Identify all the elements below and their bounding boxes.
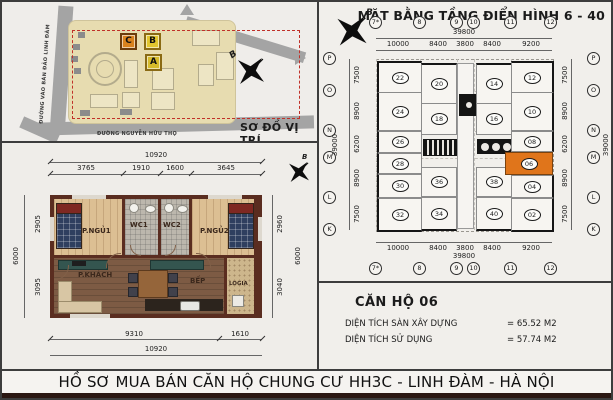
dim-total-bottom: 10920 bbox=[145, 345, 167, 353]
room-label-bedroom2: P.NGỦ2 bbox=[200, 227, 229, 235]
unit-number: 04 bbox=[524, 181, 541, 193]
dim-right: 2960 bbox=[276, 215, 284, 233]
dim-height: 6200 bbox=[353, 135, 361, 153]
road-bottom-label: ĐƯỜNG NGUYỄN HỮU THỌ bbox=[97, 131, 177, 137]
room-label-bedroom1: P.NGỦ1 bbox=[82, 227, 111, 235]
tv-icon bbox=[72, 261, 86, 266]
unit-cell: 10 bbox=[511, 92, 554, 131]
stairs bbox=[423, 139, 457, 156]
unit-number: 20 bbox=[431, 78, 448, 90]
axis-bubble-row: K bbox=[587, 223, 600, 236]
dim-line bbox=[50, 355, 262, 356]
unit-number: 26 bbox=[392, 136, 409, 148]
unit-info-row: DIỆN TÍCH SÀN XÂY DỰNG = 65.52 M2 bbox=[345, 319, 557, 329]
dim-width: 10000 bbox=[387, 40, 409, 48]
dim-width: 9200 bbox=[522, 244, 540, 252]
dim-width: 3800 bbox=[456, 244, 474, 252]
unit-number: 12 bbox=[524, 72, 541, 84]
dim-height: 8900 bbox=[561, 102, 569, 120]
document-sheet: C B A B ĐƯỜNG VÀO BÁN ĐẢO LINH ĐÀM ĐƯỜNG… bbox=[0, 0, 613, 400]
apartment-plan-panel: 10920 3765 1910 1600 3645 6000 2905 3095… bbox=[2, 143, 319, 369]
unit-cell: 24 bbox=[377, 92, 422, 131]
unit-info-label: DIỆN TÍCH SÀN XÂY DỰNG bbox=[345, 319, 507, 329]
unit-cell: 36 bbox=[421, 167, 457, 197]
bottom-edge-strip bbox=[2, 393, 611, 398]
dim-total-width: 39800 bbox=[453, 252, 475, 260]
dim-line bbox=[50, 162, 262, 163]
unit-number: 02 bbox=[524, 209, 541, 221]
road-left-label: ĐƯỜNG VÀO BÁN ĐẢO LINH ĐÀM bbox=[39, 24, 52, 124]
bed bbox=[228, 203, 254, 249]
unit-number: 28 bbox=[392, 158, 409, 170]
axis-bubble-row: O bbox=[323, 84, 336, 97]
axis-bubble-row: P bbox=[587, 52, 600, 65]
unit-number: 22 bbox=[392, 72, 409, 84]
unit-number: 38 bbox=[486, 176, 503, 188]
window bbox=[208, 195, 242, 199]
unit-cell-highlighted: 06 bbox=[505, 152, 553, 175]
unit-number: 36 bbox=[431, 176, 448, 188]
wall bbox=[224, 258, 227, 314]
axis-bubble-col: 10 bbox=[467, 262, 480, 275]
dim-top: 1910 bbox=[132, 164, 150, 172]
dim-line bbox=[349, 59, 350, 230]
unit-number: 16 bbox=[486, 113, 503, 125]
axis-bubble-row: K bbox=[323, 223, 336, 236]
room-label-wc1: WC1 bbox=[130, 221, 148, 229]
dim-line bbox=[571, 59, 572, 230]
unit-cell: 16 bbox=[476, 103, 512, 135]
dim-bottom: 9310 bbox=[125, 330, 143, 338]
chair bbox=[168, 273, 178, 283]
lift-icon bbox=[481, 143, 489, 151]
window bbox=[70, 314, 110, 318]
dim-height: 7500 bbox=[353, 205, 361, 223]
dim-line bbox=[376, 242, 552, 243]
dim-height: 8900 bbox=[353, 169, 361, 187]
unit-number: 14 bbox=[486, 78, 503, 90]
road-arrow-up-icon bbox=[180, 4, 194, 15]
sink-icon bbox=[177, 205, 188, 213]
building-label-a: A bbox=[150, 57, 157, 67]
dim-top: 3645 bbox=[217, 164, 235, 172]
unit-cell: 12 bbox=[511, 61, 554, 93]
tick bbox=[260, 336, 266, 342]
dim-top: 1600 bbox=[166, 164, 184, 172]
dim-line bbox=[24, 195, 25, 318]
wall bbox=[122, 199, 125, 255]
corridor bbox=[457, 63, 474, 229]
building-block-b: B bbox=[144, 33, 161, 50]
compass-icon bbox=[234, 54, 268, 88]
unit-cell: 20 bbox=[421, 63, 457, 104]
unit-number: 10 bbox=[524, 106, 541, 118]
floor-plan-panel: MẶT BẰNG TẦNG ĐIỂN HÌNH 6 - 40 B 7* 8 9 … bbox=[319, 2, 611, 283]
pillow bbox=[229, 204, 253, 214]
sofa bbox=[58, 301, 102, 313]
axis-bubble-col: 8 bbox=[413, 262, 426, 275]
chair bbox=[168, 287, 178, 297]
dim-bottom: 1610 bbox=[231, 330, 249, 338]
dim-top: 3765 bbox=[77, 164, 95, 172]
unit-cell: 30 bbox=[377, 174, 422, 198]
floor-plan-title: MẶT BẰNG TẦNG ĐIỂN HÌNH 6 - 40 bbox=[358, 8, 605, 23]
lift-icon bbox=[466, 102, 472, 108]
bed bbox=[56, 203, 82, 249]
apartment-outline: P.NGỦ1 WC1 WC2 P.NGỦ2 P.KHÁCH BẾP LOGIA bbox=[50, 195, 262, 318]
axis-bubble-row: M bbox=[587, 151, 600, 164]
unit-cell: 18 bbox=[421, 103, 457, 135]
axis-bubble-row: L bbox=[587, 191, 600, 204]
dim-width: 8400 bbox=[483, 40, 501, 48]
axis-bubble-row: P bbox=[323, 52, 336, 65]
axis-bubble-col: 7* bbox=[369, 262, 382, 275]
dim-left: 3095 bbox=[34, 278, 42, 296]
dim-width: 10000 bbox=[387, 244, 409, 252]
toilet-icon bbox=[164, 203, 174, 213]
sink-icon bbox=[145, 205, 156, 213]
unit-info-label: DIỆN TÍCH SỬ DỤNG bbox=[345, 335, 507, 345]
building-label-b: B bbox=[149, 36, 156, 46]
unit-info-value: = 65.52 M2 bbox=[507, 319, 557, 329]
pillow bbox=[57, 204, 81, 214]
chair bbox=[128, 287, 138, 297]
unit-number: 40 bbox=[486, 208, 503, 220]
room-label-loggia: LOGIA bbox=[229, 281, 248, 287]
dim-total-right: 6000 bbox=[294, 247, 302, 265]
dining-table bbox=[138, 270, 168, 298]
dim-width: 8400 bbox=[429, 40, 447, 48]
dim-width: 9200 bbox=[522, 40, 540, 48]
unit-info-value: = 57.74 M2 bbox=[507, 335, 557, 345]
dim-width: 8400 bbox=[429, 244, 447, 252]
unit-cell: 40 bbox=[476, 197, 512, 231]
dim-height: 7500 bbox=[561, 205, 569, 223]
dim-total-width: 39800 bbox=[453, 28, 475, 36]
dim-width: 8400 bbox=[483, 244, 501, 252]
washing-machine-icon bbox=[232, 295, 244, 307]
unit-number: 08 bbox=[524, 136, 541, 148]
unit-number: 18 bbox=[431, 113, 448, 125]
axis-bubble-col: 8 bbox=[413, 16, 426, 29]
dim-line bbox=[376, 38, 552, 39]
dim-right: 3040 bbox=[276, 278, 284, 296]
axis-bubble-col: 9 bbox=[450, 262, 463, 275]
dim-left: 2905 bbox=[34, 215, 42, 233]
axis-bubble-col: 11 bbox=[504, 16, 517, 29]
compass-icon bbox=[286, 159, 312, 185]
chair bbox=[128, 273, 138, 283]
window bbox=[258, 217, 262, 241]
building-block-c: C bbox=[120, 33, 137, 50]
room-label-wc2: WC2 bbox=[163, 221, 181, 229]
unit-cell: 32 bbox=[377, 198, 422, 232]
unit-number: 32 bbox=[392, 209, 409, 221]
tick bbox=[260, 171, 266, 177]
axis-bubble-col: 7* bbox=[369, 16, 382, 29]
window bbox=[50, 217, 54, 241]
title-bar: HỒ SƠ MUA BÁN CĂN HỘ CHUNG CƯ HH3C - LIN… bbox=[2, 369, 611, 393]
dim-line bbox=[272, 195, 273, 318]
wall bbox=[158, 199, 161, 255]
tick bbox=[260, 159, 266, 165]
wall bbox=[189, 199, 192, 255]
lift-icon bbox=[503, 143, 511, 151]
dim-line bbox=[50, 339, 262, 340]
room-label-living: P.KHÁCH bbox=[78, 271, 112, 279]
dim-height: 8900 bbox=[561, 169, 569, 187]
unit-number: 30 bbox=[392, 180, 409, 192]
building-label-c: C bbox=[125, 36, 132, 46]
dim-height: 8900 bbox=[353, 102, 361, 120]
unit-number: 24 bbox=[392, 106, 409, 118]
unit-cell: 28 bbox=[377, 153, 422, 174]
unit-info-panel: CĂN HỘ 06 DIỆN TÍCH SÀN XÂY DỰNG = 65.52… bbox=[319, 283, 611, 369]
dim-height: 6200 bbox=[561, 135, 569, 153]
axis-bubble-col: 11 bbox=[504, 262, 517, 275]
site-map-panel: C B A B ĐƯỜNG VÀO BÁN ĐẢO LINH ĐÀM ĐƯỜNG… bbox=[2, 2, 319, 143]
grid-line bbox=[474, 59, 475, 230]
dim-line bbox=[376, 50, 552, 51]
unit-info-title: CĂN HỘ 06 bbox=[355, 295, 438, 310]
unit-info-row: DIỆN TÍCH SỬ DỤNG = 57.74 M2 bbox=[345, 335, 557, 345]
toilet-icon bbox=[129, 203, 139, 213]
dim-total-left: 6000 bbox=[12, 247, 20, 265]
dim-height: 7500 bbox=[561, 66, 569, 84]
unit-cell: 02 bbox=[511, 198, 554, 232]
site-map-caption: SƠ ĐỒ VỊ TRÍ bbox=[240, 121, 317, 143]
document-title: HỒ SƠ MUA BÁN CĂN HỘ CHUNG CƯ HH3C - LIN… bbox=[58, 373, 554, 391]
axis-bubble-row: L bbox=[323, 191, 336, 204]
unit-cell: 04 bbox=[511, 175, 554, 198]
unit-number: 34 bbox=[431, 208, 448, 220]
unit-number: 06 bbox=[521, 158, 538, 170]
unit-cell: 26 bbox=[377, 131, 422, 153]
dim-width: 3800 bbox=[456, 40, 474, 48]
dim-line bbox=[50, 174, 262, 175]
lift-icon bbox=[492, 143, 500, 151]
unit-cell: 34 bbox=[421, 197, 457, 231]
unit-cell: 22 bbox=[377, 61, 422, 93]
compass-label: B bbox=[302, 153, 307, 161]
dim-total-top: 10920 bbox=[145, 151, 167, 159]
axis-bubble-col: 12 bbox=[544, 262, 557, 275]
window bbox=[72, 195, 106, 199]
building-block-a: A bbox=[145, 54, 162, 71]
dim-height: 7500 bbox=[353, 66, 361, 84]
room-label-kitchen: BẾP bbox=[190, 277, 205, 285]
sink-icon bbox=[180, 301, 200, 311]
dim-total-height: 39000 bbox=[331, 134, 339, 156]
axis-bubble-row: O bbox=[587, 84, 600, 97]
axis-bubble-col: 12 bbox=[544, 16, 557, 29]
dim-total-height: 39000 bbox=[602, 134, 610, 156]
axis-bubble-row: N bbox=[587, 124, 600, 137]
unit-cell: 08 bbox=[511, 131, 554, 152]
unit-cell: 14 bbox=[476, 63, 512, 104]
